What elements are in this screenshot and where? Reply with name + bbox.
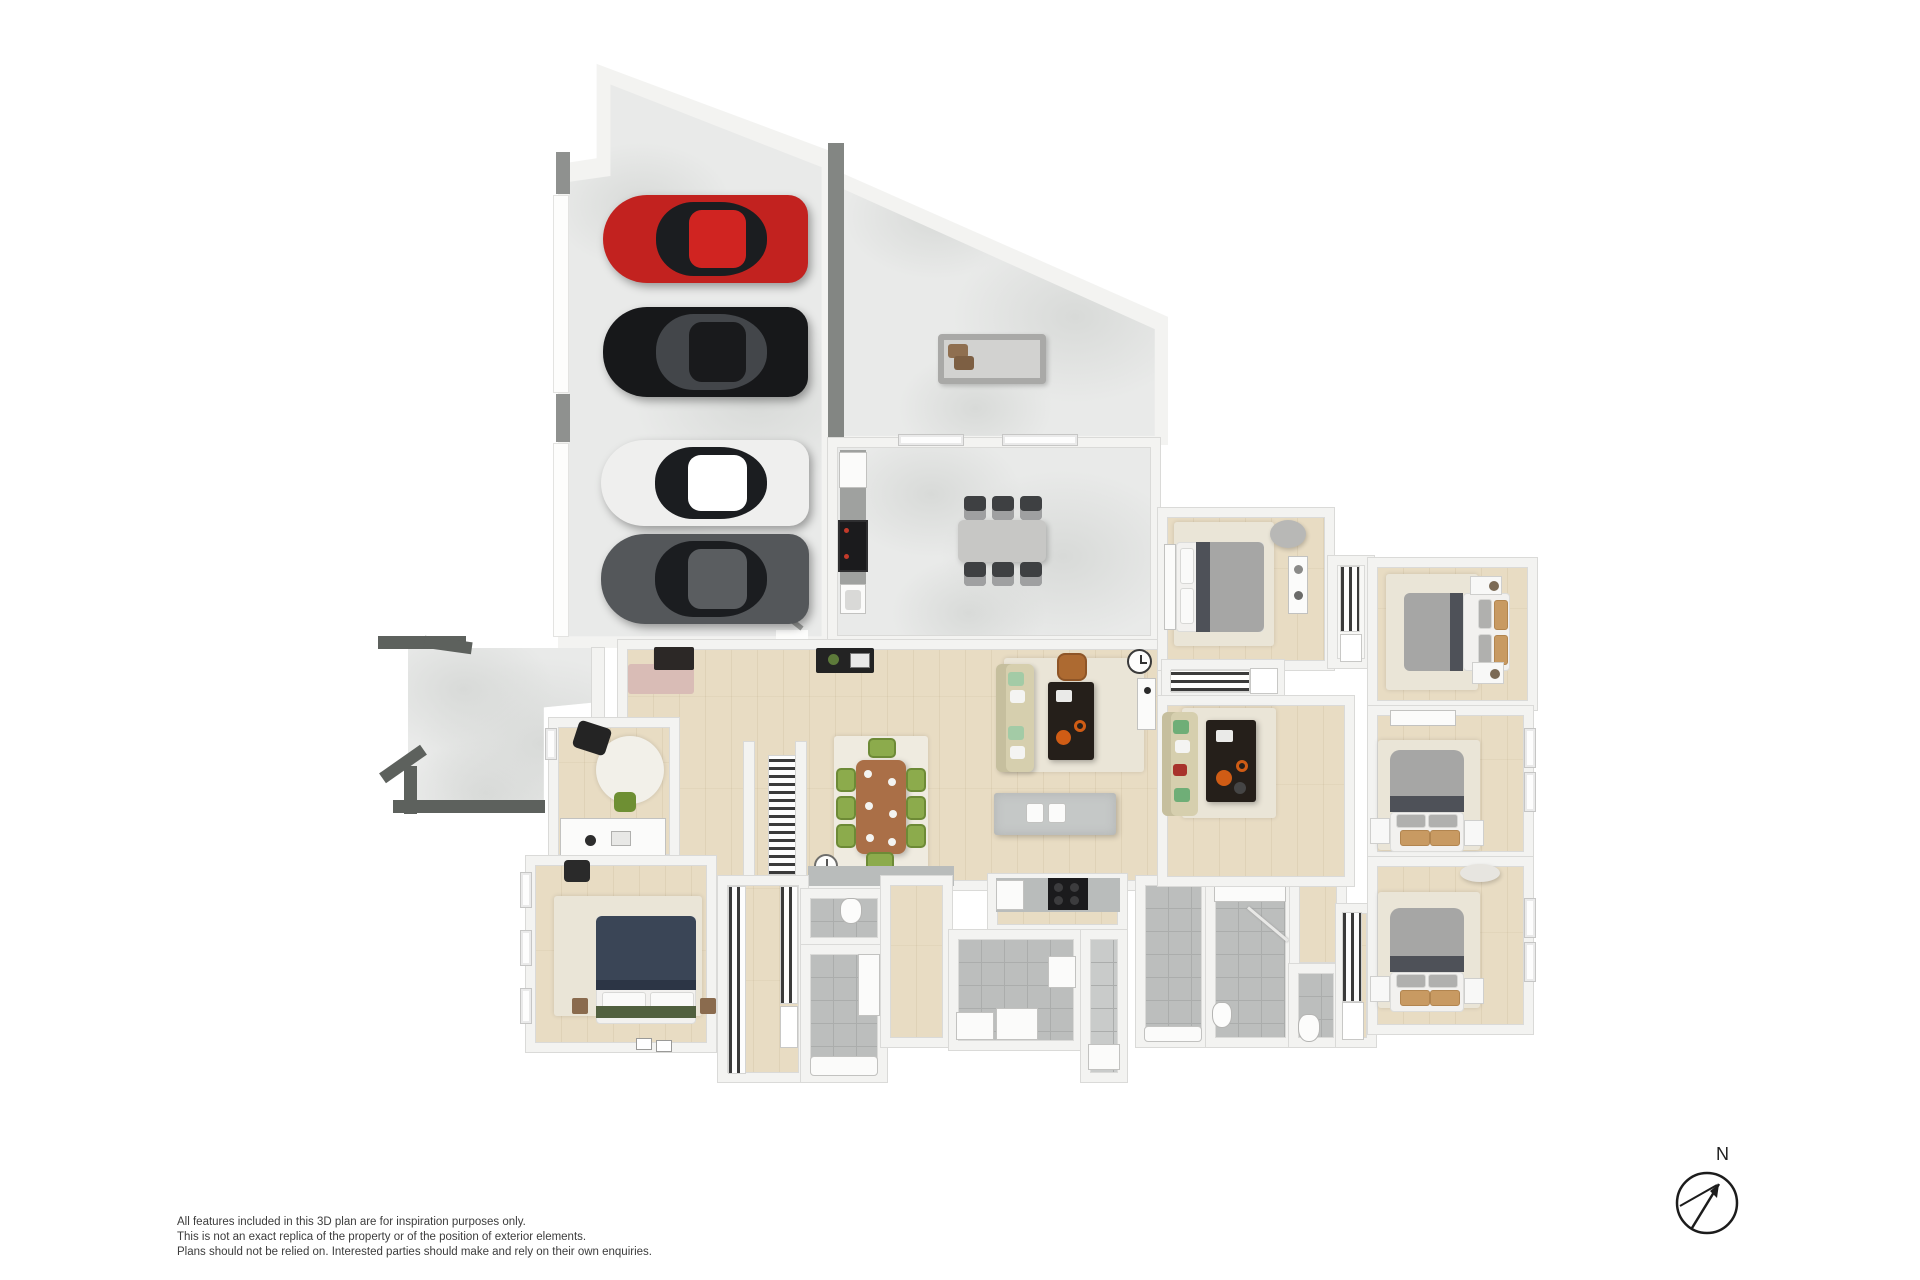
- pantry-wall: [796, 742, 806, 878]
- bed-headboard: [1164, 544, 1176, 630]
- decor-item: [1294, 591, 1303, 600]
- living-wall-cabinet: [1137, 678, 1156, 730]
- green-dining-chair: [836, 824, 856, 848]
- nightstand: [1470, 576, 1502, 595]
- compass-graphic: [1662, 1140, 1762, 1250]
- indoor-dining-table: [856, 760, 906, 854]
- dining-chair: [1020, 496, 1042, 520]
- floor-frame: [636, 1038, 652, 1050]
- decor-ring-orange: [1074, 720, 1086, 732]
- pouf: [1460, 864, 1500, 882]
- green-dining-chair: [836, 768, 856, 792]
- sofa-pillow-green: [1174, 788, 1190, 802]
- stove-knob: [844, 528, 849, 533]
- patio-left-wall: [828, 143, 844, 445]
- robe-rack: [1342, 912, 1362, 1002]
- bed-duvet: [1390, 750, 1464, 796]
- sofa-pillow-white: [1010, 746, 1025, 759]
- dining-window: [898, 434, 964, 446]
- bed-pillow-gray: [1428, 974, 1458, 988]
- shower-tray: [996, 1008, 1038, 1040]
- robe-rack: [780, 886, 798, 1004]
- fridge: [839, 452, 867, 488]
- sink-basin: [845, 590, 861, 610]
- tv-screen: [850, 653, 870, 668]
- bedroom-window: [1524, 772, 1536, 812]
- bathroom-3: [1136, 876, 1211, 1047]
- sofa-pillow-mint: [1008, 672, 1024, 686]
- decor-item: [1490, 669, 1500, 679]
- car-red: [603, 195, 808, 283]
- place-setting: [864, 770, 872, 778]
- stove: [838, 520, 868, 572]
- bed-pillow-tan: [1430, 990, 1460, 1006]
- green-dining-chair: [906, 824, 926, 848]
- bed-pillow-tan: [1430, 830, 1460, 846]
- green-dining-chair: [906, 768, 926, 792]
- bed-duvet: [1390, 908, 1464, 956]
- bed-duvet-fold: [1196, 542, 1210, 632]
- shower-tray: [956, 1012, 994, 1040]
- floor-plan-canvas: All features included in this 3D plan ar…: [0, 0, 1920, 1280]
- green-dining-chair: [868, 738, 896, 758]
- bedside-table: [700, 998, 716, 1014]
- burner: [1070, 883, 1079, 892]
- patio-floor: [836, 140, 1168, 445]
- wall-clock: [1127, 649, 1152, 674]
- cooktop: [1048, 878, 1088, 910]
- bed-pillow-gray: [1428, 814, 1458, 828]
- decor-tray-white: [1056, 690, 1072, 702]
- green-dining-chair: [906, 796, 926, 820]
- garage-door-opening: [554, 444, 568, 636]
- rumpus-coffee-table: [1206, 720, 1256, 802]
- garage-wall-stub: [556, 394, 570, 442]
- bed-pillow: [1180, 588, 1194, 624]
- floor-frame: [656, 1040, 672, 1052]
- robe-rack: [728, 886, 746, 1074]
- place-setting: [866, 834, 874, 842]
- bed-duvet-fold: [1390, 956, 1464, 972]
- bed-duvet-fold: [596, 980, 696, 990]
- courtyard-wall: [393, 800, 545, 813]
- compass-north-icon: N: [1662, 1140, 1762, 1250]
- bench-cushion: [954, 356, 974, 370]
- burner: [1054, 896, 1063, 905]
- bed-duvet-navy: [596, 916, 696, 980]
- disclaimer-line: Plans should not be relied on. Intereste…: [177, 1245, 652, 1260]
- bed-pillow-gray: [1396, 974, 1426, 988]
- bed-pillow-tan: [1400, 830, 1430, 846]
- bed-duvet: [1210, 542, 1264, 632]
- green-dining-chair: [836, 796, 856, 820]
- disclaimer-text: All features included in this 3D plan ar…: [177, 1215, 652, 1260]
- bed-pillow-tan: [1400, 990, 1430, 1006]
- bedroom-window: [1524, 898, 1536, 938]
- robe-rack: [1340, 566, 1360, 632]
- leather-armchair: [1057, 653, 1087, 681]
- coffee-table: [1048, 682, 1094, 760]
- dining-chair: [992, 496, 1014, 520]
- bed-duvet-fold: [1450, 593, 1463, 671]
- bed-pillow-tan: [1494, 635, 1508, 665]
- office-window: [545, 728, 557, 760]
- pouf: [1270, 520, 1306, 548]
- car-roof: [688, 549, 746, 608]
- car-roof: [689, 322, 746, 381]
- bedroom-window: [1524, 942, 1536, 982]
- bed-pillow: [1180, 548, 1194, 584]
- island-sink: [1048, 803, 1066, 823]
- car-roof: [689, 210, 746, 268]
- place-setting: [865, 802, 873, 810]
- robe-shelf: [780, 1006, 798, 1048]
- washing-machine: [1088, 1044, 1120, 1070]
- bedroom-window: [1524, 728, 1536, 768]
- pantry-wall: [744, 742, 754, 878]
- sofa-pillow-white: [1010, 690, 1025, 703]
- office-desk: [560, 818, 666, 856]
- plant-icon: [828, 654, 839, 665]
- toilet: [840, 898, 862, 924]
- decor-tray-white: [1216, 730, 1233, 742]
- disclaimer-line: This is not an exact replica of the prop…: [177, 1230, 652, 1245]
- nightstand: [1370, 976, 1390, 1002]
- dresser: [1288, 556, 1308, 614]
- car-white: [601, 440, 809, 526]
- dining-chair: [964, 562, 986, 586]
- bed-duvet-fold: [1390, 796, 1464, 812]
- dining-window: [1002, 434, 1078, 446]
- car-roof: [688, 455, 746, 512]
- sofa-pillow-white: [1175, 740, 1190, 753]
- burner: [1070, 896, 1079, 905]
- cabinet-knob: [1144, 687, 1151, 694]
- vanity: [1048, 956, 1076, 988]
- nightstand: [1370, 818, 1390, 844]
- bed-pillow-gray: [1396, 814, 1426, 828]
- bed-throw-green: [596, 1006, 696, 1018]
- nightstand: [1472, 662, 1504, 684]
- sofa-pillow-red: [1173, 764, 1187, 776]
- entry-console: [654, 647, 694, 670]
- office-chair-green: [614, 792, 636, 812]
- bedroom-window: [520, 930, 532, 966]
- island-sink: [1026, 803, 1044, 823]
- place-setting: [889, 810, 897, 818]
- pantry-shelves: [768, 755, 796, 875]
- dining-chair: [1020, 562, 1042, 586]
- bathtub: [1144, 1026, 1202, 1042]
- sofa-pillow-mint: [1008, 726, 1024, 740]
- bed-pillow-gray: [1478, 599, 1492, 629]
- bed-pillow-tan: [1494, 600, 1508, 630]
- laptop: [611, 831, 631, 846]
- car-gray: [601, 534, 809, 624]
- bedroom-window: [520, 872, 532, 908]
- decor-item: [1489, 581, 1499, 591]
- bedside-table: [572, 998, 588, 1014]
- place-setting: [888, 838, 896, 846]
- toilet: [1298, 1014, 1320, 1042]
- hallway: [881, 876, 952, 1047]
- bed-pillow-gray: [1478, 634, 1492, 664]
- dresser: [1390, 710, 1456, 726]
- desk-lamp: [585, 835, 596, 846]
- clock-hand: [1140, 662, 1147, 664]
- decor-bowl-orange: [1216, 770, 1232, 786]
- compass-north-label: N: [1716, 1144, 1729, 1165]
- sofa: [996, 664, 1034, 772]
- alfresco-patio: [836, 140, 1168, 445]
- tv-unit: [816, 648, 874, 673]
- rumpus-sofa: [1162, 712, 1198, 816]
- decor-item: [1294, 565, 1303, 574]
- robe-drawers: [1340, 634, 1362, 662]
- decor-ring-orange: [1236, 760, 1248, 772]
- butlers-fridge: [996, 880, 1024, 910]
- robe-shelf: [1250, 668, 1278, 694]
- dining-chair: [992, 562, 1014, 586]
- outdoor-bench: [938, 334, 1046, 384]
- garage-door-opening: [554, 196, 568, 392]
- bedroom-desk-chair: [564, 860, 590, 882]
- car-black: [603, 307, 808, 397]
- dining-chair: [964, 496, 986, 520]
- bathtub: [810, 1056, 878, 1076]
- vanity: [858, 954, 880, 1016]
- nightstand: [1464, 978, 1484, 1004]
- outdoor-dining-table: [958, 520, 1046, 562]
- decor-bowl-orange: [1056, 730, 1071, 745]
- stove-knob: [844, 554, 849, 559]
- sofa-pillow-green: [1173, 720, 1189, 734]
- robe-shelf: [1342, 1002, 1364, 1040]
- nightstand: [1464, 820, 1484, 846]
- disclaimer-line: All features included in this 3D plan ar…: [177, 1215, 652, 1230]
- place-setting: [888, 778, 896, 786]
- decor-bowl-dark: [1234, 782, 1246, 794]
- bedroom-window: [520, 988, 532, 1024]
- burner: [1054, 883, 1063, 892]
- bed-duvet: [1404, 593, 1450, 671]
- robe-rack: [1170, 670, 1250, 692]
- toilet: [1212, 1002, 1232, 1028]
- garage-wall-stub: [556, 152, 570, 194]
- dining-sink: [840, 584, 866, 614]
- kitchen-island: [994, 793, 1116, 835]
